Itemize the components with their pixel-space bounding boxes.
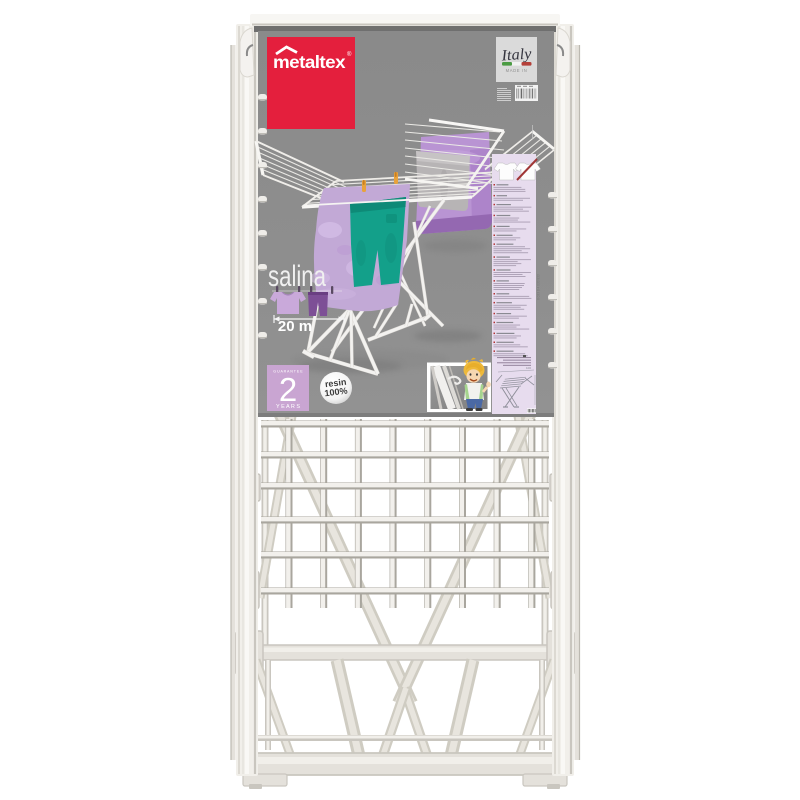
svg-text:8 033 8 4 033 833: 8 033 8 4 033 833 — [537, 274, 541, 300]
svg-text:metaltex: metaltex — [273, 52, 346, 72]
svg-text:®: ® — [347, 51, 352, 58]
svg-text:MADE IN: MADE IN — [506, 68, 528, 73]
svg-text:Y E A R S: Y E A R S — [276, 404, 300, 410]
svg-text:Italy: Italy — [500, 45, 532, 64]
svg-text:100: 100 — [526, 366, 531, 370]
svg-text:2: 2 — [279, 371, 297, 408]
svg-text:20 m: 20 m — [278, 318, 312, 335]
